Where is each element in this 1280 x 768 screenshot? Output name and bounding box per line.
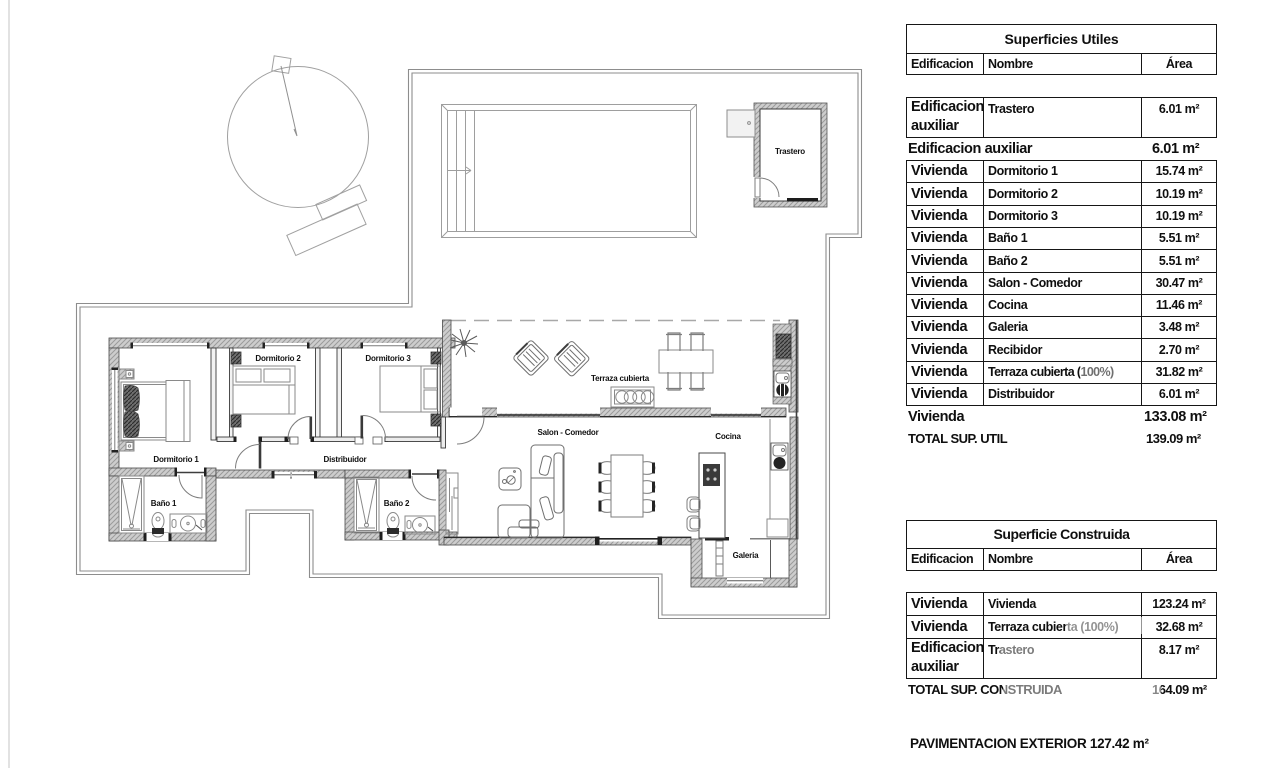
svg-text:Dormitorio 2: Dormitorio 2: [255, 354, 301, 363]
svg-text:Galeria: Galeria: [733, 551, 759, 560]
svg-text:Trastero: Trastero: [775, 147, 805, 156]
svg-text:Dormitorio 3: Dormitorio 3: [365, 354, 411, 363]
svg-text:Distribuidor: Distribuidor: [324, 455, 367, 464]
svg-text:Baño 1: Baño 1: [151, 499, 177, 508]
svg-text:Dormitorio 1: Dormitorio 1: [153, 455, 199, 464]
svg-text:Terraza cubierta: Terraza cubierta: [591, 374, 650, 383]
svg-text:Baño 2: Baño 2: [384, 499, 410, 508]
svg-text:Salon - Comedor: Salon - Comedor: [537, 428, 598, 437]
svg-text:Cocina: Cocina: [715, 432, 741, 441]
